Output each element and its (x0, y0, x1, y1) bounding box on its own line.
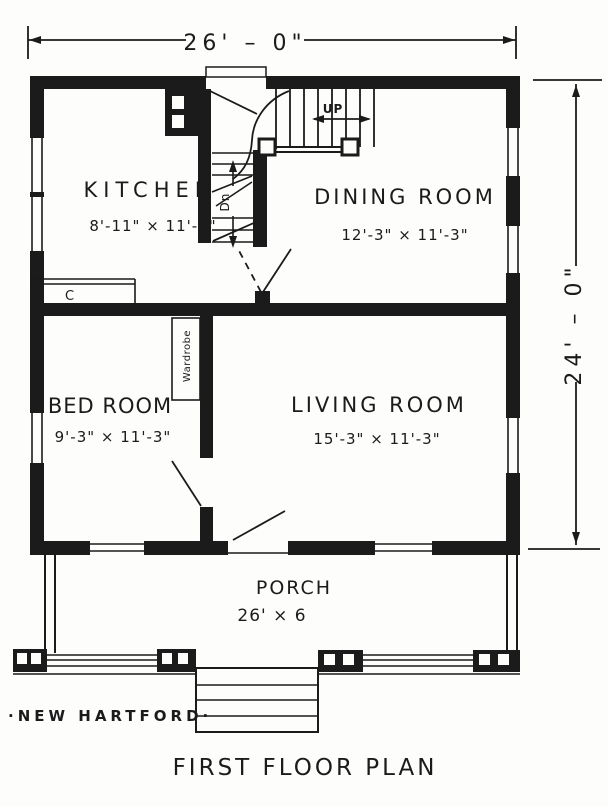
dining-room-size: 12'-3" × 11'-3" (341, 226, 468, 244)
up-arrow (312, 115, 371, 123)
newel-post (259, 139, 275, 155)
house-name-caption: ·NEW HARTFORD· (8, 707, 212, 725)
kitchen-room-label: KITCHEN (84, 178, 217, 202)
porch-label: PORCH (256, 577, 332, 599)
newel-post (342, 139, 358, 155)
dimension-height-label: 24' – 0" (562, 262, 587, 385)
living-room-size: 15'-3" × 11'-3" (313, 430, 440, 448)
kitchen-counter (30, 279, 135, 303)
stairs-down-label: Dn (218, 193, 232, 212)
dimension-width-label: 26' – 0" (183, 31, 306, 56)
floor-plan-sheet: 26' – 0" 24' – 0" KITCHEN 8'-11" × 11'-3… (0, 0, 608, 806)
porch-size: 26' × 6 (237, 606, 306, 626)
floor-plan-drawing: 26' – 0" 24' – 0" KITCHEN 8'-11" × 11'-3… (0, 0, 608, 806)
kitchen-room-size: 8'-11" × 11'-3" (89, 217, 216, 235)
entry-steps (196, 668, 318, 732)
living-room-label: LIVING ROOM (291, 393, 467, 417)
cupboard-label: C (65, 289, 75, 304)
stairs-up-label: UP (323, 102, 344, 116)
stairs (212, 89, 374, 248)
bedroom-room-size: 9'-3" × 11'-3" (55, 428, 172, 446)
bedroom-room-label: BED ROOM (48, 394, 172, 418)
dining-room-label: DINING ROOM (314, 185, 496, 209)
wardrobe-label: Wardrobe (182, 330, 193, 382)
drawing-title: FIRST FLOOR PLAN (173, 755, 438, 781)
